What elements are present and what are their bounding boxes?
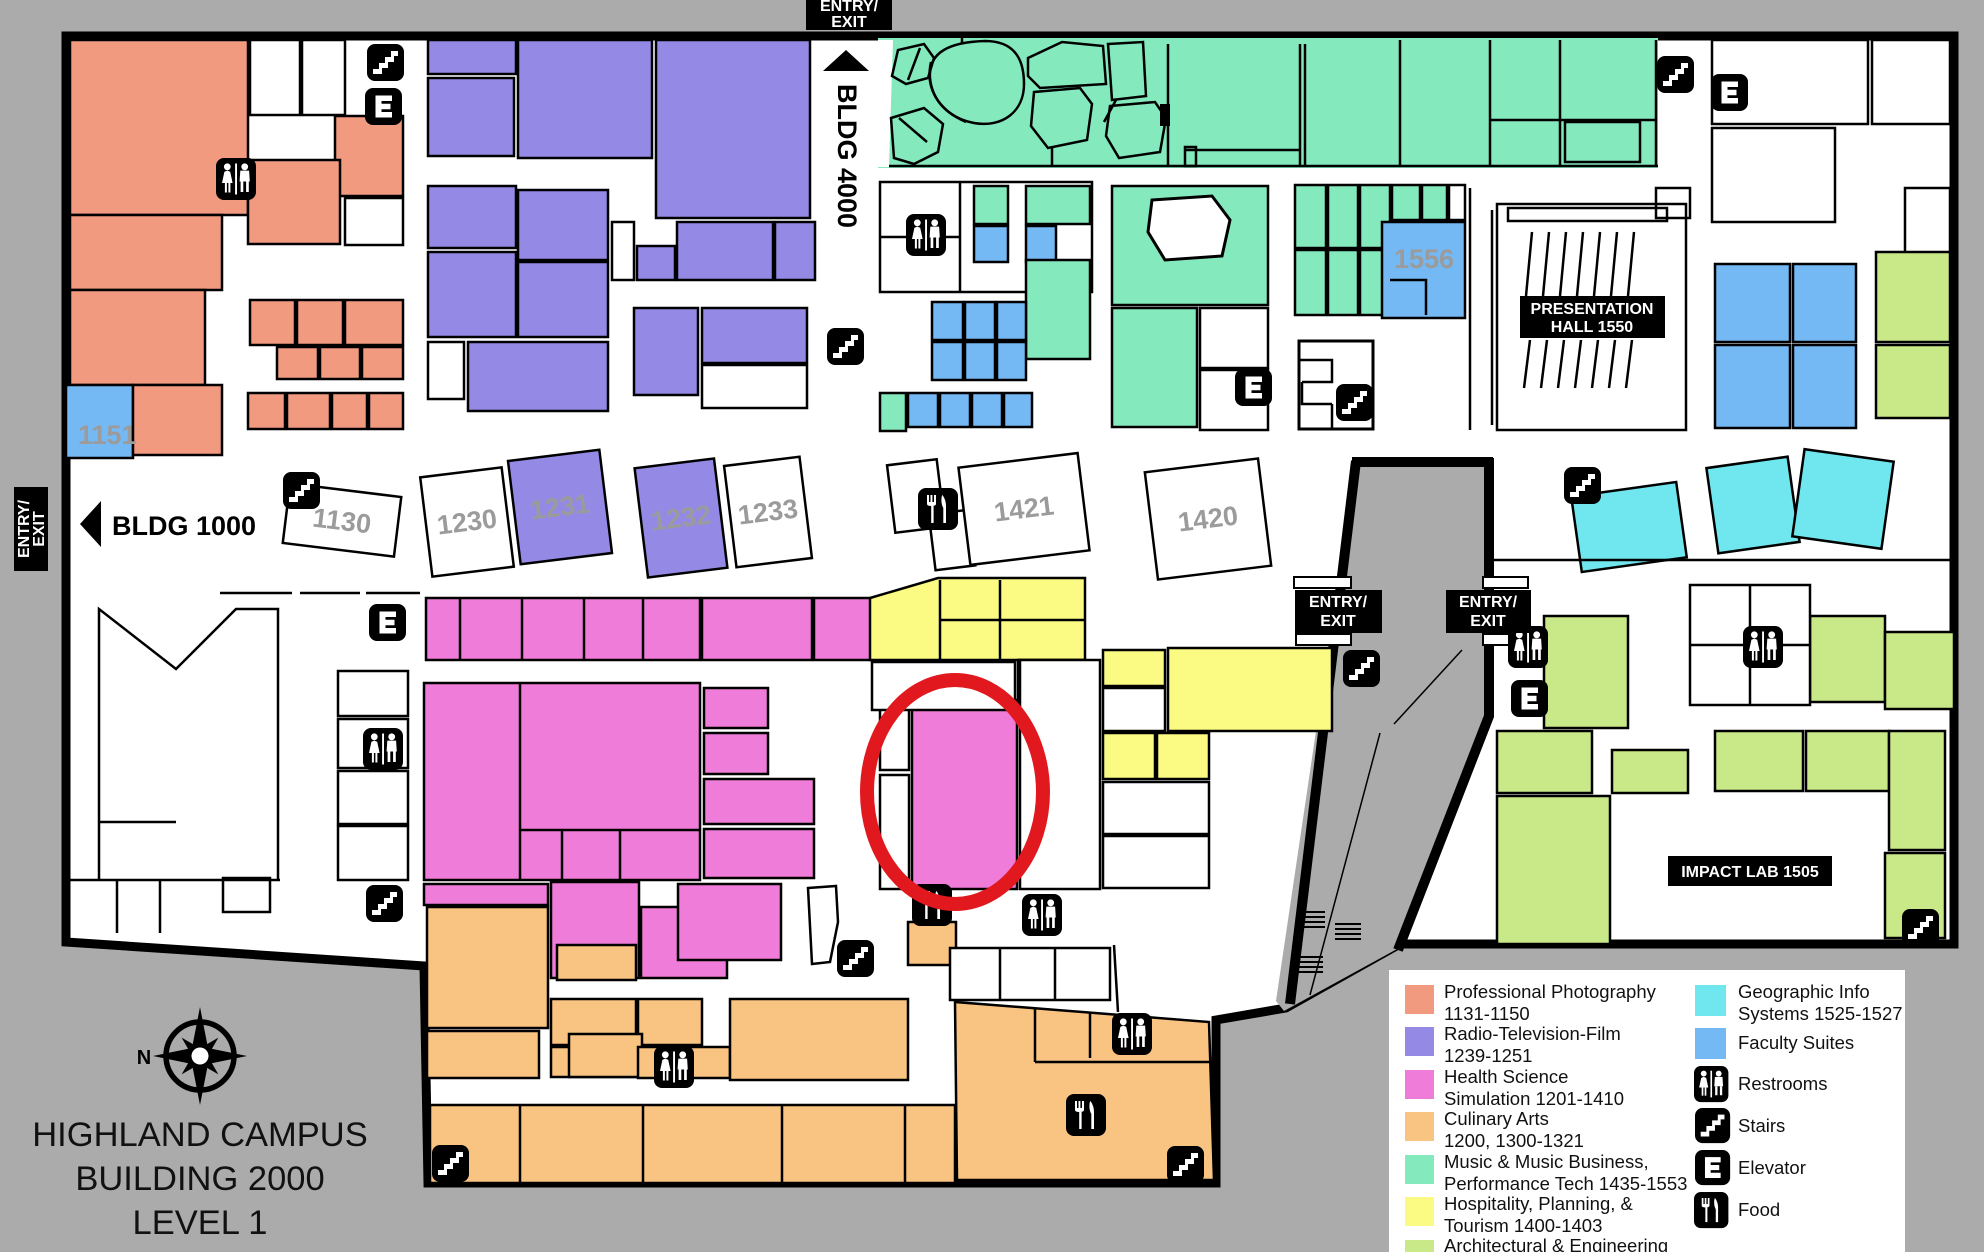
svg-text:Architectural & Engineering: Architectural & Engineering — [1444, 1235, 1668, 1252]
svg-text:1556: 1556 — [1394, 244, 1454, 274]
svg-text:Systems 1525-1527: Systems 1525-1527 — [1738, 1003, 1903, 1024]
svg-text:HIGHLAND CAMPUS: HIGHLAND CAMPUS — [32, 1116, 367, 1154]
svg-text:IMPACT LAB 1505: IMPACT LAB 1505 — [1681, 864, 1819, 881]
svg-text:EXIT: EXIT — [1470, 613, 1506, 630]
svg-text:Simulation 1201-1410: Simulation 1201-1410 — [1444, 1088, 1624, 1109]
svg-text:BLDG 4000: BLDG 4000 — [832, 84, 862, 228]
svg-text:Performance Tech 1435-1553: Performance Tech 1435-1553 — [1444, 1173, 1687, 1194]
svg-text:EXIT: EXIT — [1320, 613, 1356, 630]
svg-text:EXIT: EXIT — [31, 511, 48, 547]
svg-text:Faculty Suites: Faculty Suites — [1738, 1032, 1854, 1053]
svg-text:Geographic Info: Geographic Info — [1738, 981, 1870, 1002]
svg-text:Radio-Television-Film: Radio-Television-Film — [1444, 1023, 1621, 1044]
svg-text:ENTRY/: ENTRY/ — [1459, 594, 1518, 611]
svg-text:Professional Photography: Professional Photography — [1444, 981, 1657, 1002]
svg-text:PRESENTATION: PRESENTATION — [1531, 301, 1654, 318]
svg-text:1151: 1151 — [78, 420, 137, 450]
svg-text:EXIT: EXIT — [831, 14, 867, 31]
svg-text:Food: Food — [1738, 1199, 1780, 1220]
svg-text:Restrooms: Restrooms — [1738, 1073, 1827, 1094]
svg-text:Elevator: Elevator — [1738, 1157, 1806, 1178]
svg-text:Health Science: Health Science — [1444, 1066, 1568, 1087]
svg-text:Tourism 1400-1403: Tourism 1400-1403 — [1444, 1215, 1602, 1236]
svg-text:1200, 1300-1321: 1200, 1300-1321 — [1444, 1130, 1584, 1151]
svg-text:1239-1251: 1239-1251 — [1444, 1045, 1532, 1066]
svg-text:Hospitality, Planning, &: Hospitality, Planning, & — [1444, 1193, 1634, 1214]
svg-text:Culinary Arts: Culinary Arts — [1444, 1108, 1549, 1129]
svg-text:ENTRY/: ENTRY/ — [820, 0, 879, 15]
svg-text:BLDG 1000: BLDG 1000 — [112, 511, 256, 541]
svg-text:N: N — [137, 1047, 151, 1069]
svg-text:Stairs: Stairs — [1738, 1115, 1785, 1136]
svg-text:1131-1150: 1131-1150 — [1444, 1003, 1530, 1024]
svg-text:ENTRY/: ENTRY/ — [1309, 594, 1368, 611]
svg-text:HALL 1550: HALL 1550 — [1551, 319, 1634, 336]
svg-text:LEVEL 1: LEVEL 1 — [133, 1204, 268, 1242]
svg-text:BUILDING 2000: BUILDING 2000 — [75, 1160, 324, 1198]
svg-text:Music & Music Business,: Music & Music Business, — [1444, 1151, 1649, 1172]
